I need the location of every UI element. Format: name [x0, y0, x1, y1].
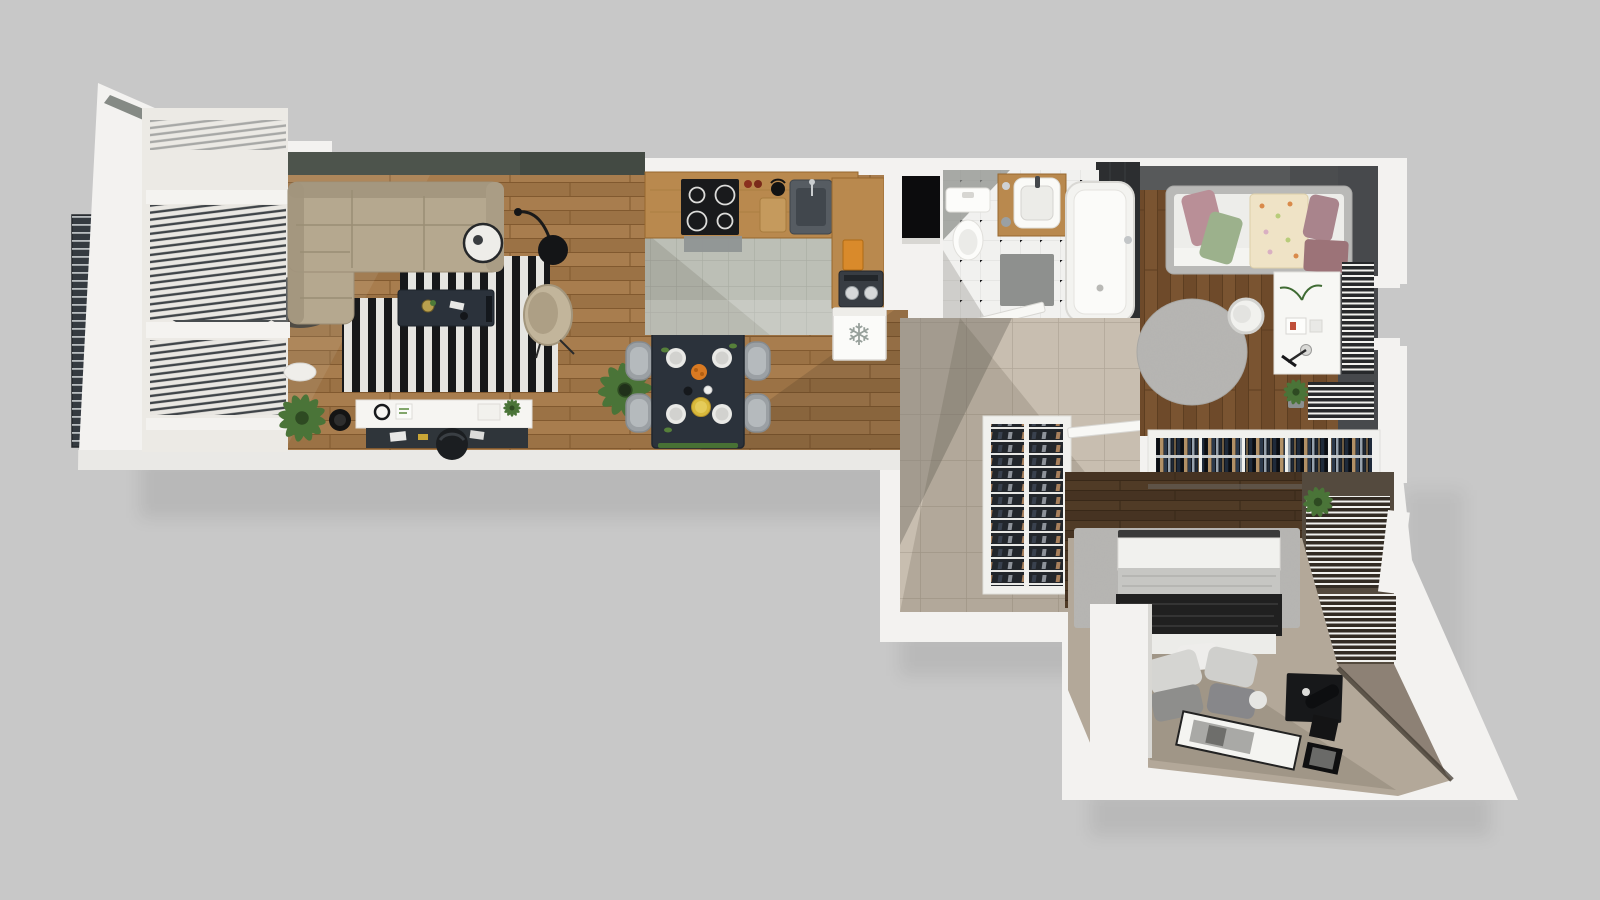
floorplan-svg: ❄ — [0, 0, 1600, 900]
media-sideboard — [356, 399, 532, 428]
desk-chair — [436, 428, 468, 460]
range-hood — [684, 236, 742, 252]
dining-table — [652, 330, 744, 448]
spice-jar — [754, 180, 762, 188]
shoe-cabinet — [983, 416, 1071, 594]
blanket-rose — [1303, 239, 1349, 273]
kitchen-sink — [790, 179, 832, 234]
single-bed — [1166, 186, 1352, 274]
window-frame — [146, 418, 290, 430]
dining-chair — [626, 394, 652, 432]
cutting-board — [760, 198, 786, 232]
ring-side-table — [464, 224, 502, 262]
kitchen-counter-right — [832, 178, 884, 308]
floral-duvet — [1250, 194, 1308, 268]
wall-bottom-face — [78, 450, 935, 470]
window-opening — [1378, 284, 1407, 346]
bathroom — [943, 162, 1140, 344]
orange-board — [843, 240, 863, 270]
round-chair — [1229, 299, 1263, 333]
vanity-sink — [998, 174, 1066, 236]
window-sill — [1374, 276, 1400, 288]
desk — [1274, 272, 1340, 374]
bedroom-master — [1065, 472, 1452, 798]
bathtub — [1066, 182, 1134, 322]
spice-jar — [744, 180, 752, 188]
coffee-table — [398, 290, 494, 326]
window-sill — [1374, 338, 1400, 350]
window-frame — [146, 322, 290, 338]
kettle — [771, 180, 785, 196]
fridge: ❄ — [833, 308, 886, 360]
bath-mat — [1000, 254, 1054, 306]
utility-niche — [884, 158, 946, 310]
dining-chair — [626, 342, 652, 380]
snowflake-icon: ❄ — [846, 318, 871, 353]
niche-appliance — [902, 176, 940, 238]
master-left-wall — [1090, 604, 1148, 798]
floorplan-render: 3D top-down floor plan render of a one-b… — [0, 0, 1600, 900]
dining-chair — [744, 394, 770, 432]
dining-chair — [744, 342, 770, 380]
cooktop — [681, 179, 739, 235]
window-frame — [146, 190, 290, 204]
tub-faucet — [1124, 236, 1132, 244]
coffee-machine — [839, 271, 883, 307]
bedroom-small — [1137, 166, 1407, 484]
